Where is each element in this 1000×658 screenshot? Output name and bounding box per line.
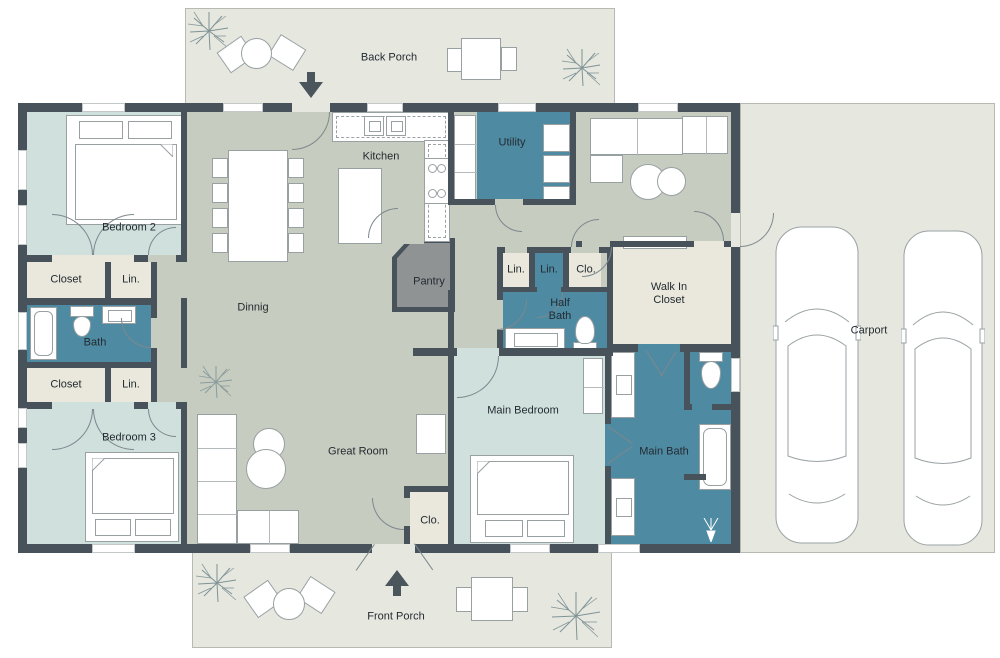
sofa-icon <box>197 414 237 544</box>
porch-table <box>471 577 513 621</box>
kitchen-sink <box>364 116 384 136</box>
room-label-kitchen: Kitchen <box>363 150 400 163</box>
door-opening <box>151 318 157 348</box>
sofa-icon <box>590 155 623 183</box>
room-label-closet: Closet <box>50 273 81 286</box>
porch-table <box>461 38 501 80</box>
dining-chair <box>212 158 228 178</box>
dining-chair <box>288 158 304 178</box>
door-opening <box>404 498 410 526</box>
round-table <box>657 167 686 196</box>
toilet-icon <box>698 352 724 390</box>
wall <box>684 474 706 480</box>
wall <box>151 362 157 402</box>
wall <box>731 103 740 553</box>
room-label-half-bath: Half Bath <box>540 297 580 323</box>
wall <box>448 348 454 544</box>
wardrobe <box>682 116 728 154</box>
toilet-icon <box>70 306 94 338</box>
porch-chair <box>456 587 472 612</box>
window <box>92 544 135 553</box>
porch-chair <box>501 47 517 71</box>
door-opening <box>638 344 680 352</box>
room-label-closet-hall: Clo. <box>576 263 596 276</box>
room-label-bedroom-3: Bedroom 3 <box>102 431 156 444</box>
door-opening <box>181 262 187 298</box>
back-door-opening <box>292 103 330 112</box>
porch-chair <box>512 587 528 612</box>
room-label-linen: Lin. <box>122 378 140 391</box>
porch-round-table <box>241 38 272 69</box>
door-opening <box>694 241 724 247</box>
room-label-linen-hall: Lin. <box>540 263 558 276</box>
window <box>598 544 640 553</box>
dining-table <box>228 150 288 262</box>
vanity-sink <box>611 478 635 536</box>
room-label-closet-entry: Clo. <box>420 514 440 527</box>
window <box>638 103 678 112</box>
room-label-dining: Dinnig <box>237 301 268 314</box>
porch-round-table <box>273 588 305 620</box>
sofa-icon <box>590 118 683 155</box>
dining-chair <box>212 183 228 203</box>
door-opening <box>457 348 499 356</box>
room-label-main-bath: Main Bath <box>639 445 689 458</box>
room-label-walk-in-closet: Walk In Closet <box>637 281 701 307</box>
car-icon <box>773 224 861 546</box>
room-label-main-bedroom: Main Bedroom <box>487 404 559 417</box>
plant-icon <box>548 588 604 644</box>
wall <box>529 247 535 287</box>
door-opening <box>398 238 424 244</box>
car-icon <box>901 228 985 548</box>
door-opening <box>52 255 134 262</box>
room-label-back-porch: Back Porch <box>361 51 417 64</box>
door-opening <box>181 368 187 402</box>
door-opening <box>148 255 176 262</box>
wall <box>448 103 454 199</box>
room-label-bath: Bath <box>84 336 107 349</box>
wall <box>27 362 157 368</box>
wall <box>563 247 569 287</box>
window <box>731 358 740 392</box>
room-label-linen-hall: Lin. <box>507 263 525 276</box>
sofa-icon <box>237 510 299 544</box>
room-label-linen: Lin. <box>122 273 140 286</box>
wall <box>181 112 187 544</box>
door-opening <box>52 402 134 409</box>
bed-icon <box>85 452 179 542</box>
back-entry-arrow-icon <box>299 72 323 98</box>
door-opening <box>692 404 712 410</box>
window <box>18 408 27 428</box>
plant-icon <box>194 560 240 606</box>
front-door-opening <box>372 544 415 553</box>
wall <box>684 352 690 408</box>
dining-chair <box>288 183 304 203</box>
window <box>18 443 27 468</box>
dining-chair <box>212 233 228 253</box>
window <box>498 103 536 112</box>
dresser <box>583 358 603 414</box>
vanity-sink <box>611 352 635 418</box>
room-label-front-porch: Front Porch <box>367 610 424 623</box>
room-label-bedroom-2: Bedroom 2 <box>102 221 156 234</box>
floor-plan: Back Porch Kitchen Utility Bedroom 2 Clo… <box>0 0 1000 658</box>
stove-icon <box>424 158 450 204</box>
window <box>510 544 550 553</box>
bathtub-icon <box>30 307 57 360</box>
door-opening <box>148 402 176 409</box>
dining-chair <box>288 233 304 253</box>
wall <box>448 290 454 356</box>
cabinet <box>416 414 446 454</box>
wall <box>27 298 157 305</box>
plant-icon <box>560 46 604 90</box>
kitchen-sink <box>386 116 406 136</box>
window <box>367 103 403 112</box>
room-label-pantry: Pantry <box>413 275 445 288</box>
door-opening <box>505 247 527 253</box>
plant-icon <box>197 363 235 401</box>
dining-chair <box>288 208 304 228</box>
dining-chair <box>212 208 228 228</box>
wall <box>570 103 576 205</box>
bed-icon <box>470 455 574 543</box>
window <box>223 103 263 112</box>
window <box>18 205 27 245</box>
dryer-icon <box>543 155 570 183</box>
bathtub-icon <box>699 424 731 490</box>
wall <box>404 486 454 492</box>
window <box>18 312 27 350</box>
carport-door-opening <box>731 213 740 247</box>
round-table <box>246 449 286 489</box>
wall <box>105 262 111 298</box>
bed-icon <box>66 115 184 225</box>
window <box>82 103 125 112</box>
window <box>18 150 27 190</box>
room-label-closet: Closet <box>50 378 81 391</box>
room-label-great-room: Great Room <box>328 445 388 458</box>
utility-cabinets <box>454 115 476 203</box>
wall <box>413 348 611 356</box>
wall <box>105 368 111 402</box>
washer-icon <box>543 124 570 152</box>
sink-icon <box>505 328 565 350</box>
room-label-carport: Carport <box>851 324 888 337</box>
shower-icon <box>700 518 722 542</box>
window <box>250 544 290 553</box>
front-entry-arrow-icon <box>385 570 409 596</box>
room-label-utility: Utility <box>499 136 526 149</box>
